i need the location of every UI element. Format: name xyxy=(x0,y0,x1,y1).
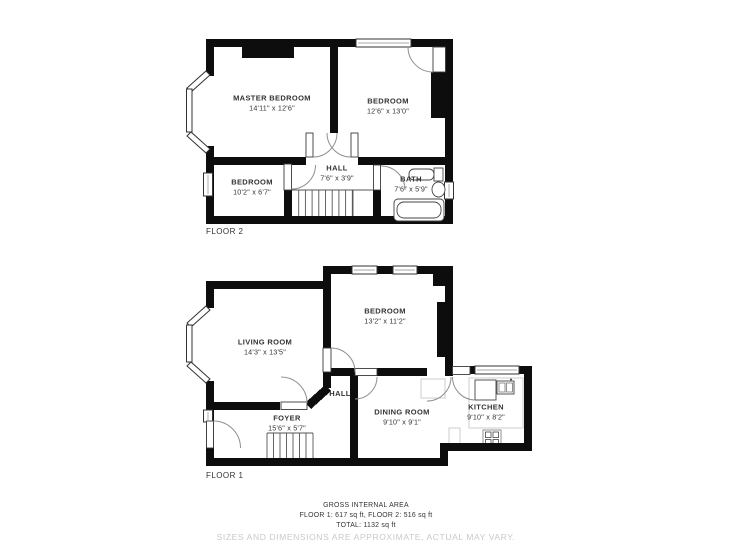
front-door-swing-arc xyxy=(214,421,241,448)
door-leaf xyxy=(374,165,381,190)
chimney-breast xyxy=(437,302,445,357)
floor2-plan xyxy=(187,39,454,224)
burner xyxy=(493,432,499,438)
chimney-breast xyxy=(431,72,445,118)
wall xyxy=(330,47,338,133)
floorplan-canvas xyxy=(0,0,733,550)
door-swing-arc xyxy=(281,377,307,403)
room-label-bedroom-f1: BEDROOM 13'2" x 11'2" xyxy=(364,306,406,325)
counter xyxy=(421,379,445,398)
floor2-tag: FLOOR 2 xyxy=(206,228,243,236)
counter xyxy=(449,428,460,445)
wall xyxy=(206,281,214,308)
bay-window-pane xyxy=(187,362,210,383)
floor1-tag: FLOOR 1 xyxy=(206,472,243,480)
door-leaf xyxy=(284,164,292,190)
wall xyxy=(440,443,532,451)
burner xyxy=(486,432,492,438)
room-label-kitchen: KITCHEN 9'10" x 8'2" xyxy=(467,402,505,421)
wall xyxy=(331,368,355,376)
door-leaf xyxy=(351,133,358,157)
wall xyxy=(206,402,280,410)
room-label-hall-f1: HALL xyxy=(329,389,350,399)
room-label-bath: BATH 7'6" x 5'9" xyxy=(394,174,428,193)
angled-wall xyxy=(305,385,331,409)
wall xyxy=(524,366,532,451)
bay-window-pane xyxy=(187,306,210,327)
door-leaf xyxy=(355,369,377,376)
wall xyxy=(323,372,331,388)
wall xyxy=(323,289,331,348)
disclaimer-text: SIZES AND DIMENSIONS ARE APPROXIMATE, AC… xyxy=(217,533,516,542)
wall xyxy=(445,266,453,376)
faucet xyxy=(510,379,512,381)
wall xyxy=(377,368,427,376)
wall xyxy=(206,458,448,466)
wall xyxy=(206,281,331,289)
sink-basin xyxy=(499,383,505,392)
floor1-plan xyxy=(187,266,533,466)
door-swing-arc xyxy=(327,133,351,157)
wall xyxy=(373,190,381,224)
wall xyxy=(350,376,358,458)
wall xyxy=(206,39,214,76)
door-swing-arc xyxy=(313,133,337,157)
room-label-bedroom3-f2: BEDROOM 10'2" x 6'7" xyxy=(231,177,273,196)
room-label-foyer: FOYER 15'6" x 5'7" xyxy=(268,413,306,432)
toilet-tank xyxy=(434,168,443,181)
wall xyxy=(284,190,292,224)
sink xyxy=(432,182,445,197)
total-area-line: TOTAL: 1132 sq ft xyxy=(336,523,395,530)
fridge xyxy=(475,380,496,400)
room-label-living-room: LIVING ROOM 14'3" x 13'5" xyxy=(238,337,292,356)
room-label-hall-f2: HALL 7'6" x 3'9" xyxy=(320,163,354,182)
door-swing-arc xyxy=(408,47,433,72)
bathtub-inner xyxy=(397,202,441,218)
door-leaf xyxy=(453,367,471,375)
floorplan-page: MASTER BEDROOM 14'11" x 12'6" BEDROOM 12… xyxy=(0,0,733,550)
door-leaf xyxy=(281,402,307,410)
bay-window-pane xyxy=(187,325,193,362)
wall xyxy=(206,39,453,47)
room-label-bedroom-f2: BEDROOM 12'6" x 13'0" xyxy=(367,96,409,115)
door-leaf xyxy=(323,348,331,372)
floor-areas-line: FLOOR 1: 617 sq ft, FLOOR 2: 516 sq ft xyxy=(300,513,433,520)
gross-internal-area-title: GROSS INTERNAL AREA xyxy=(323,503,409,510)
front-door-leaf xyxy=(207,421,214,448)
sink-basin xyxy=(507,383,513,392)
door-leaf xyxy=(433,47,446,72)
stairs-floor2 xyxy=(292,190,373,216)
bay-window-pane xyxy=(187,132,210,153)
chimney-breast xyxy=(242,47,294,58)
door-leaf xyxy=(306,133,313,157)
room-label-dining-room: DINING ROOM 9'10" x 9'1" xyxy=(374,407,430,426)
wall xyxy=(358,157,453,165)
door-swing-arc xyxy=(292,165,316,189)
wall xyxy=(433,272,445,286)
bay-window-pane xyxy=(187,89,193,132)
stairs-floor1 xyxy=(267,433,313,458)
door-swing-arc xyxy=(355,377,377,399)
room-label-master-bedroom: MASTER BEDROOM 14'11" x 12'6" xyxy=(233,93,311,112)
